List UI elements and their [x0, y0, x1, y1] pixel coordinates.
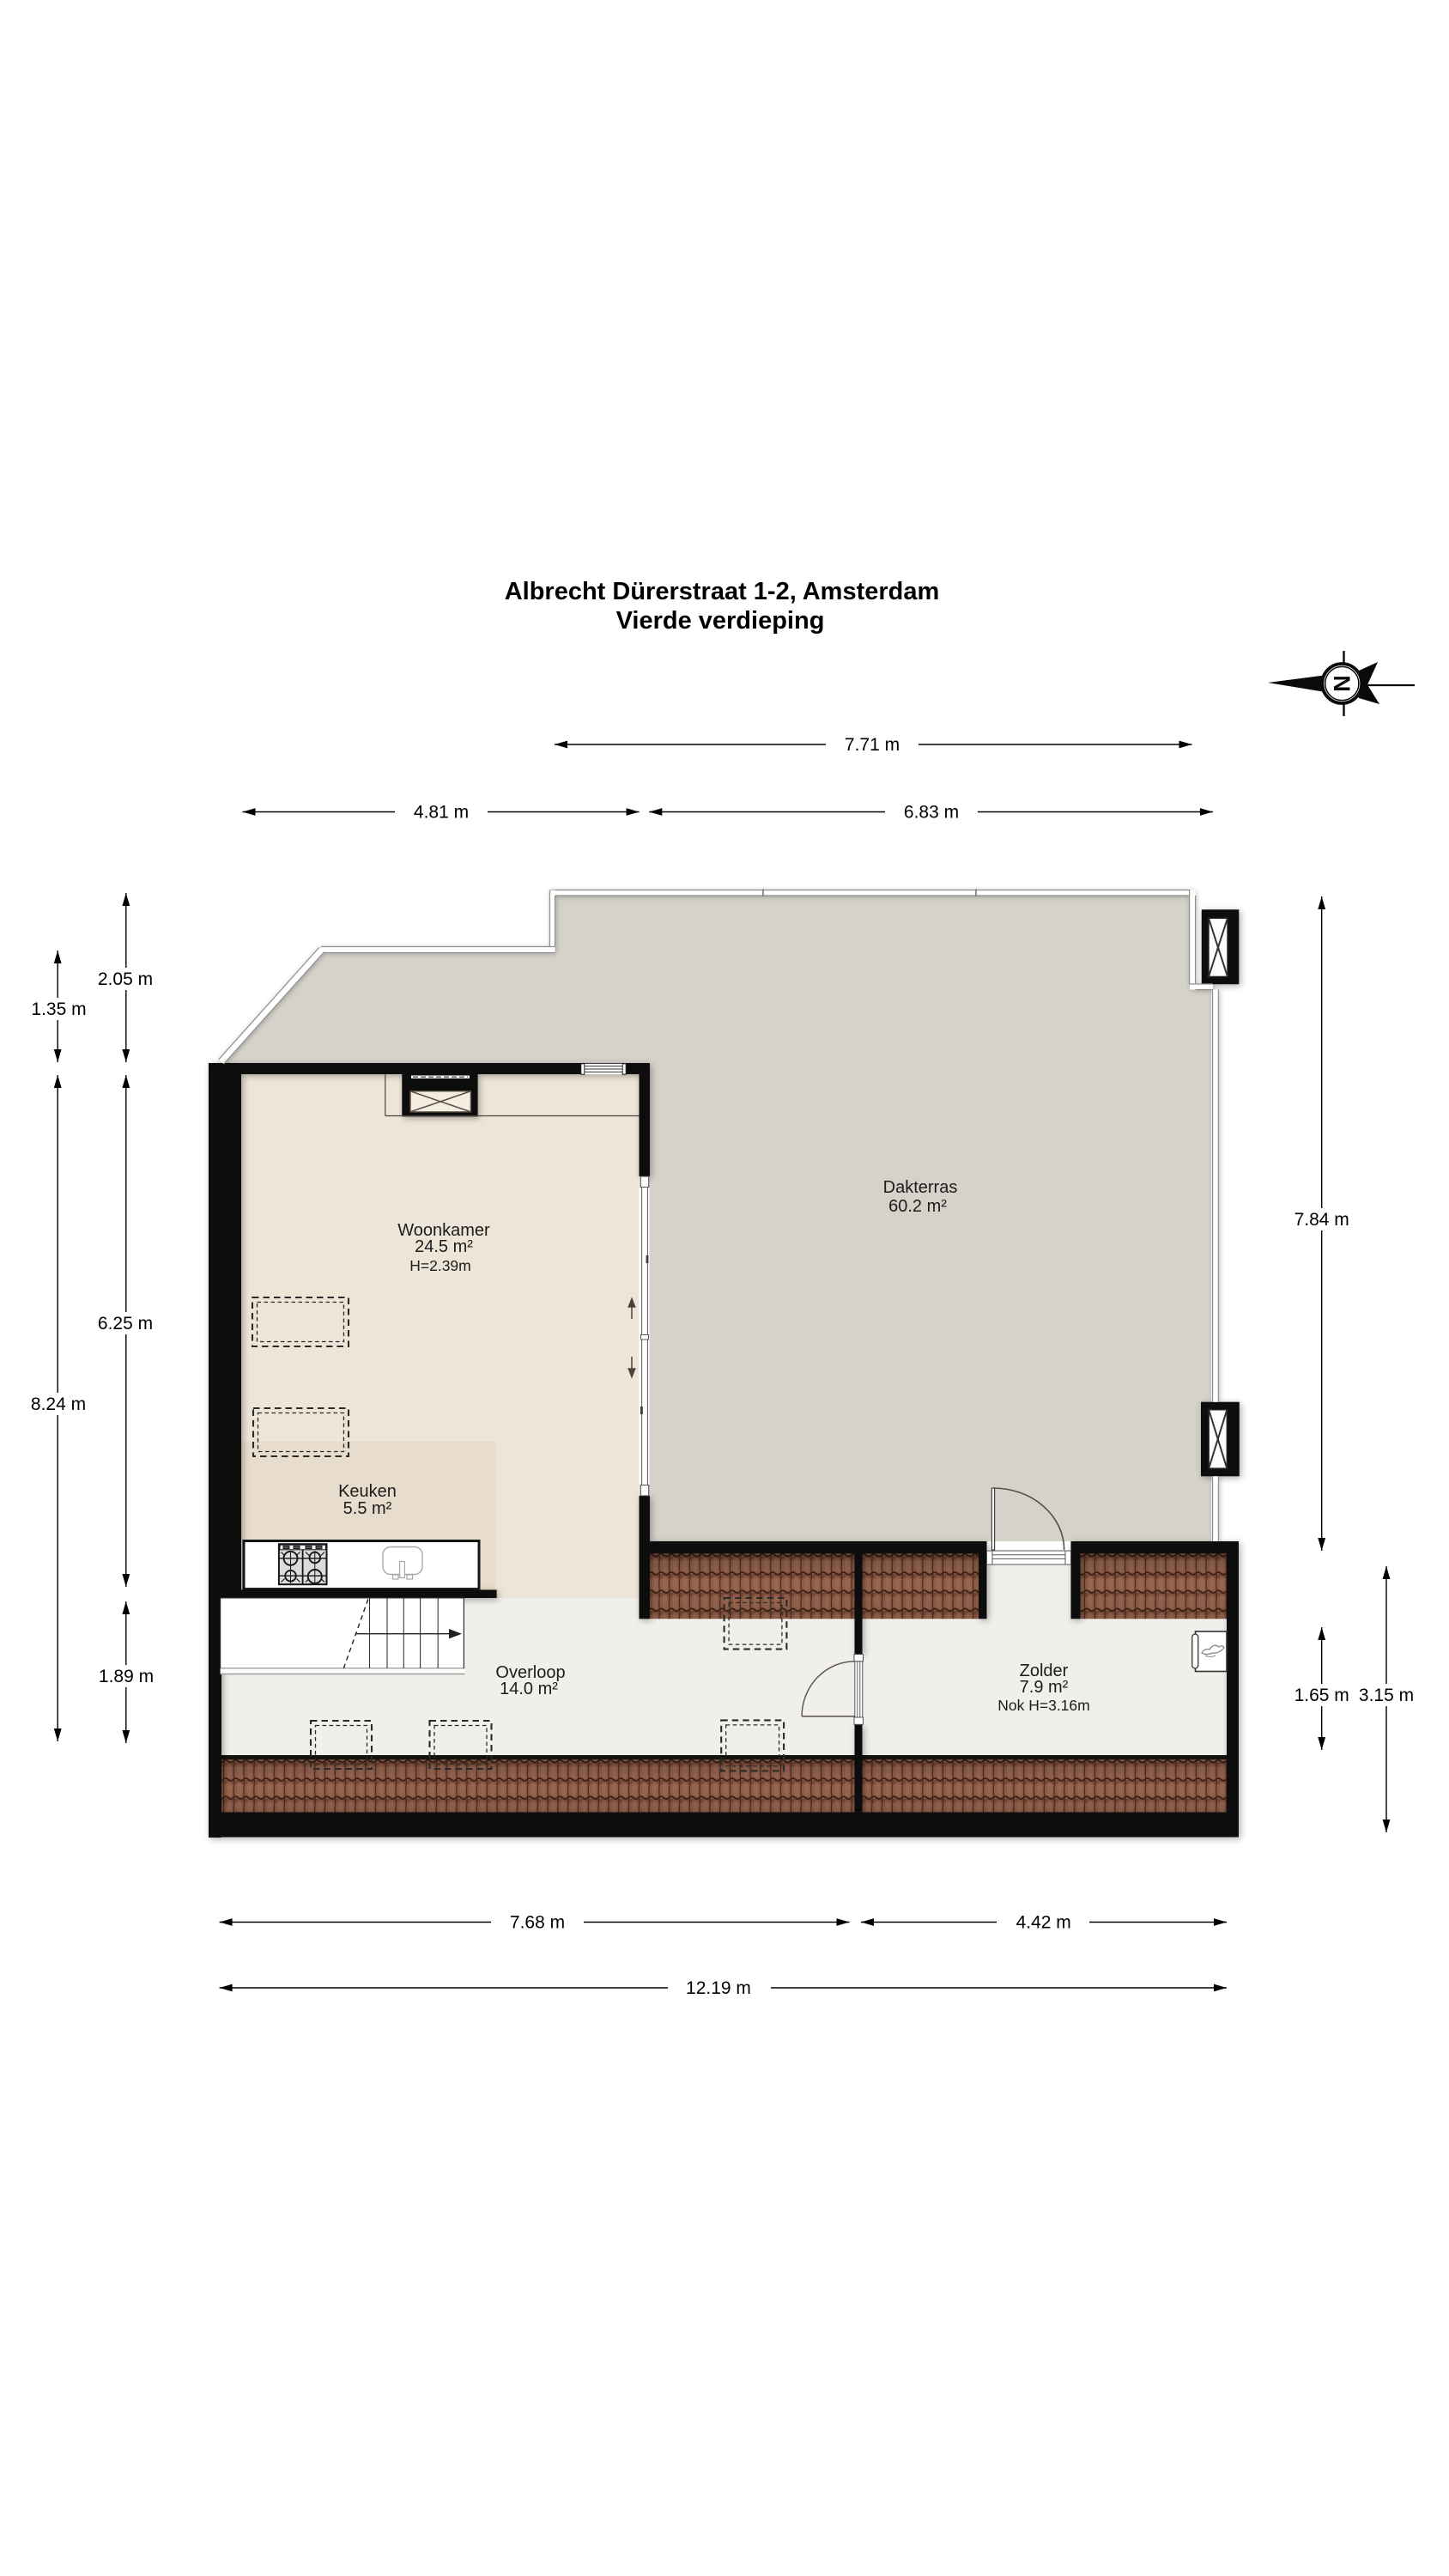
svg-text:7.9 m²: 7.9 m²	[1020, 1678, 1069, 1697]
svg-text:6.83 m: 6.83 m	[904, 803, 959, 823]
svg-text:4.42 m: 4.42 m	[1016, 1913, 1071, 1933]
svg-text:14.0 m²: 14.0 m²	[500, 1680, 558, 1698]
svg-text:3.15 m: 3.15 m	[1359, 1686, 1414, 1705]
svg-text:1.89 m: 1.89 m	[99, 1667, 154, 1686]
svg-text:1.35 m: 1.35 m	[31, 999, 86, 1019]
svg-text:7.84 m: 7.84 m	[1294, 1210, 1349, 1230]
svg-text:N: N	[1329, 675, 1355, 692]
svg-text:7.68 m: 7.68 m	[510, 1913, 565, 1933]
svg-text:24.5 m²: 24.5 m²	[415, 1237, 473, 1256]
svg-text:Albrecht Dürerstraat 1-2, Amst: Albrecht Dürerstraat 1-2, Amsterdam	[505, 578, 940, 605]
svg-text:Keuken: Keuken	[338, 1482, 397, 1501]
svg-text:Nok H=3.16m: Nok H=3.16m	[997, 1697, 1089, 1714]
svg-text:H=2.39m: H=2.39m	[409, 1257, 471, 1274]
svg-text:1.65 m: 1.65 m	[1294, 1686, 1349, 1705]
svg-text:Dakterras: Dakterras	[883, 1178, 958, 1197]
svg-text:60.2 m²: 60.2 m²	[888, 1197, 947, 1216]
svg-text:12.19 m: 12.19 m	[686, 1978, 751, 1998]
svg-text:7.71 m: 7.71 m	[845, 735, 900, 755]
svg-text:8.24 m: 8.24 m	[31, 1394, 86, 1414]
svg-text:Vierde verdieping: Vierde verdieping	[616, 607, 825, 635]
svg-text:2.05 m: 2.05 m	[98, 969, 153, 989]
svg-text:6.25 m: 6.25 m	[98, 1314, 153, 1334]
svg-text:5.5 m²: 5.5 m²	[343, 1499, 392, 1518]
svg-text:4.81 m: 4.81 m	[414, 803, 469, 823]
